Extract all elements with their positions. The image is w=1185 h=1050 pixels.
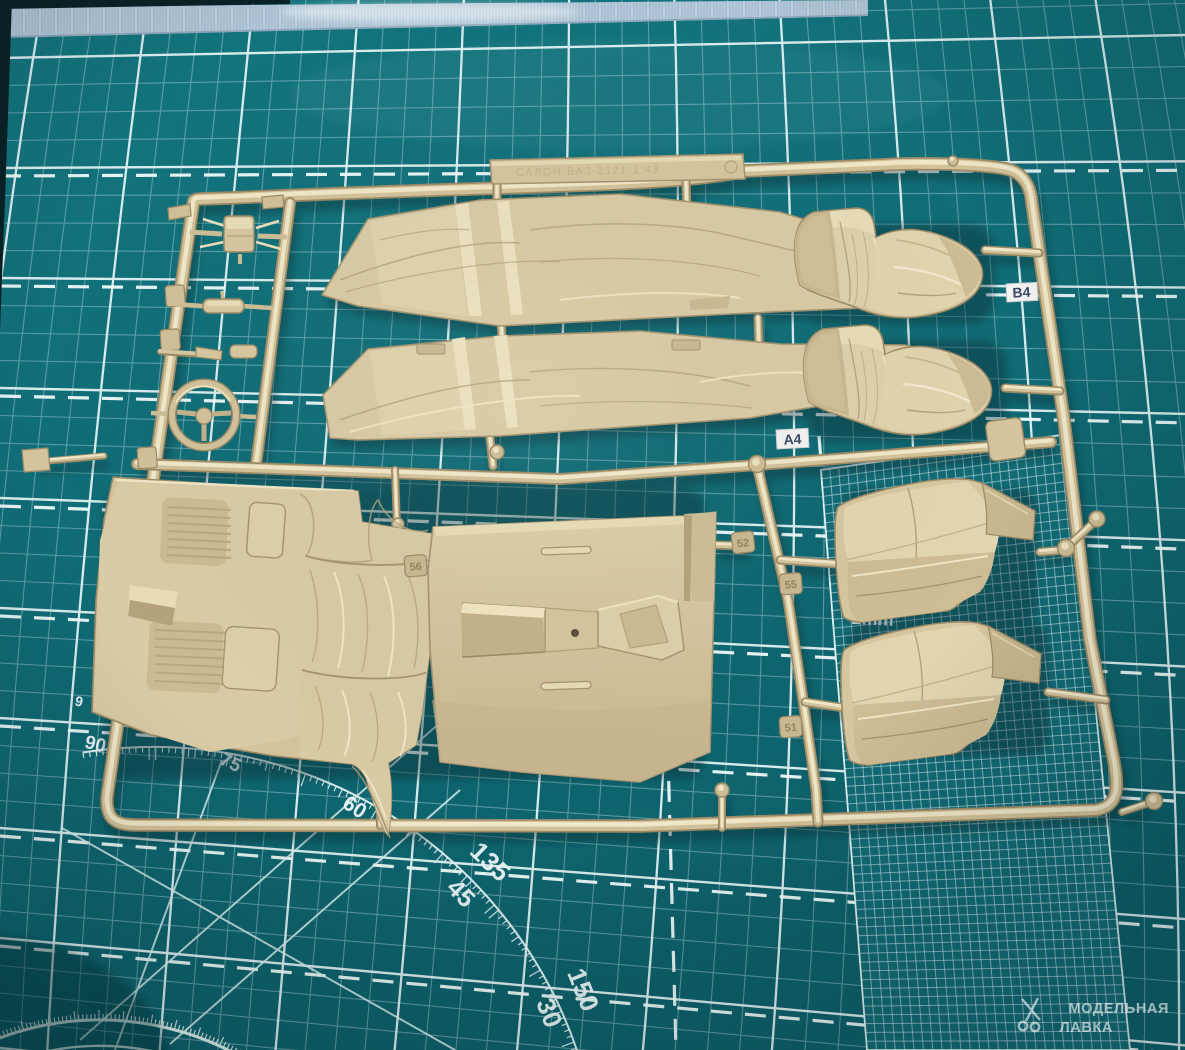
svg-text:МОДЕЛЬНАЯ: МОДЕЛЬНАЯ — [1068, 1001, 1169, 1017]
svg-text:ЛАВКА: ЛАВКА — [1060, 1020, 1113, 1036]
